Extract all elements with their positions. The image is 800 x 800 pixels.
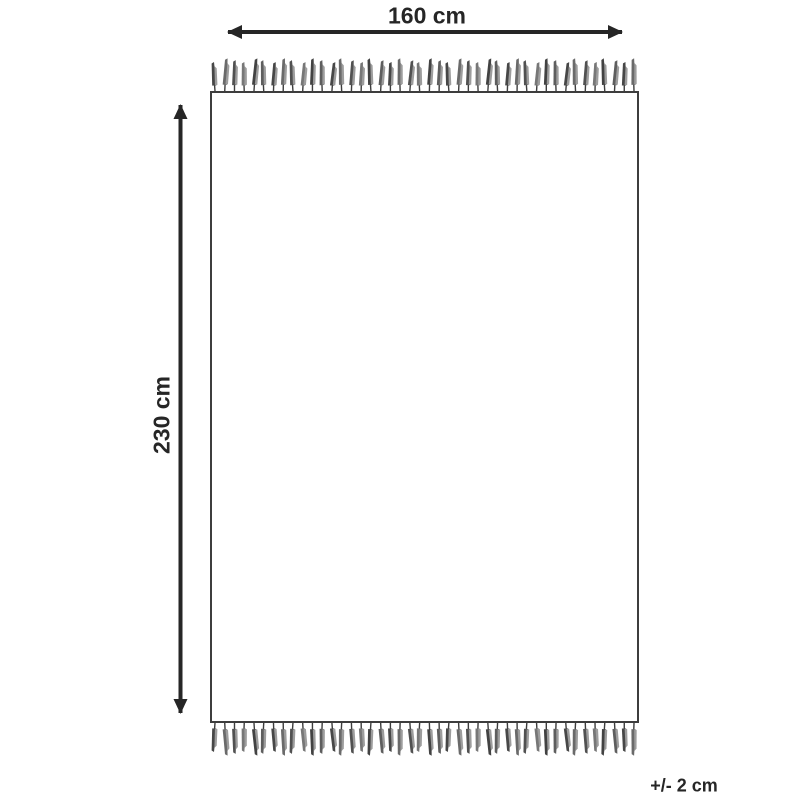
width-dimension-label: 160 cm xyxy=(388,3,466,30)
rug-diagram-graphic xyxy=(0,0,800,800)
rug-outline xyxy=(211,92,638,722)
height-dimension-label: 230 cm xyxy=(149,376,176,454)
rug-dimension-diagram: 160 cm 230 cm +/- 2 cm xyxy=(0,0,800,800)
rug-fringe-bottom xyxy=(210,723,637,756)
tolerance-label: +/- 2 cm xyxy=(650,776,718,797)
rug-fringe-top xyxy=(210,58,637,91)
